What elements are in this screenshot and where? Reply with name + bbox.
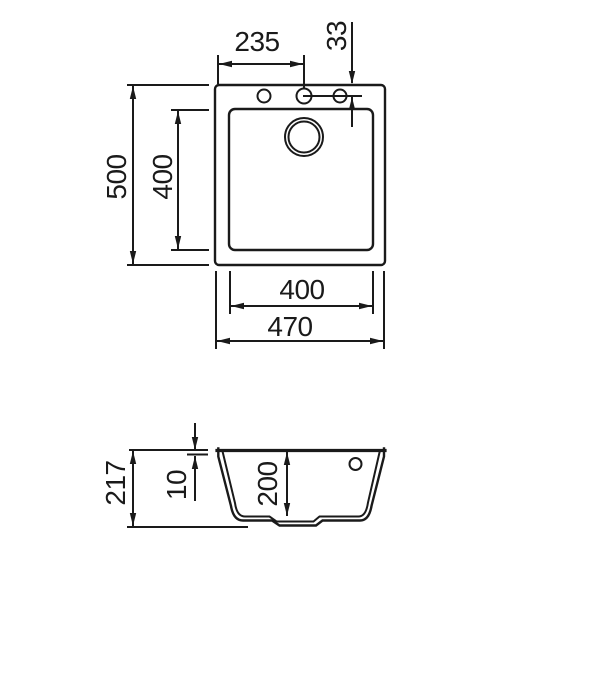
dim-label-470: 470 xyxy=(267,313,312,341)
dim-label-500: 500 xyxy=(103,154,131,199)
overflow-hole xyxy=(350,458,362,470)
faucet-hole-left xyxy=(258,90,271,103)
drain-circle-inner xyxy=(289,122,320,153)
dim-label-33: 33 xyxy=(323,21,351,51)
dim-label-235: 235 xyxy=(234,28,279,56)
dim-label-400-vertical: 400 xyxy=(149,154,177,199)
basin-inner-profile xyxy=(223,453,380,522)
top-view xyxy=(215,85,385,265)
dim-label-10: 10 xyxy=(163,470,191,500)
drain-circle-outer xyxy=(285,118,323,156)
dim-200-lines xyxy=(284,452,290,516)
dim-label-400-horizontal: 400 xyxy=(279,276,324,304)
side-view xyxy=(217,449,385,526)
drawing-linework xyxy=(0,0,600,689)
dim-label-217: 217 xyxy=(102,460,130,505)
sink-outer-outline xyxy=(215,85,385,265)
dim-235-lines xyxy=(218,56,304,88)
dim-label-200: 200 xyxy=(254,461,282,506)
bowl-outline xyxy=(229,109,373,250)
sink-technical-drawing: 235 33 500 400 400 470 217 10 200 xyxy=(0,0,600,689)
